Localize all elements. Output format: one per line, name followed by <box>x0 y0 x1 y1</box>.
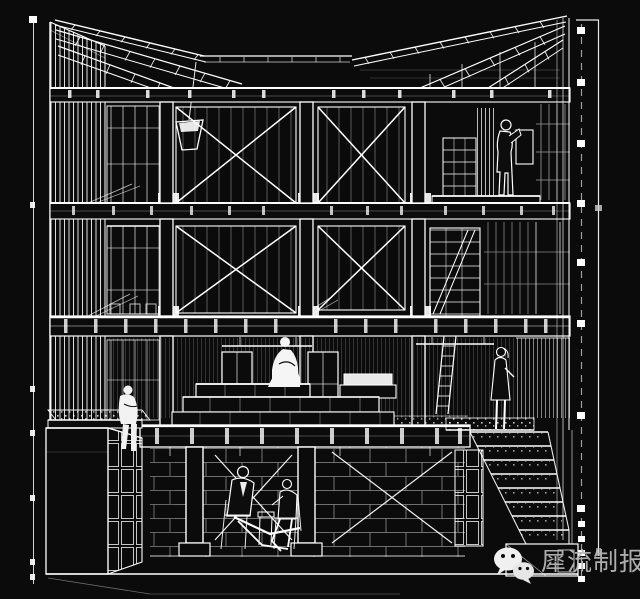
screenshot-root: 犀流制报 <box>0 0 640 599</box>
block-pier <box>455 450 483 546</box>
basement <box>150 447 483 557</box>
bright-cushion <box>344 374 392 385</box>
section-perspective-drawing <box>0 0 640 599</box>
x-brace-bay <box>318 226 405 310</box>
floor-band-top <box>50 88 570 102</box>
ladder-rack <box>430 228 480 316</box>
storage-cabinet <box>46 428 142 574</box>
x-brace-bay <box>176 226 296 313</box>
x-brace-bay <box>176 107 296 203</box>
left-wall-section <box>50 22 105 425</box>
x-brace-bay <box>318 107 405 203</box>
